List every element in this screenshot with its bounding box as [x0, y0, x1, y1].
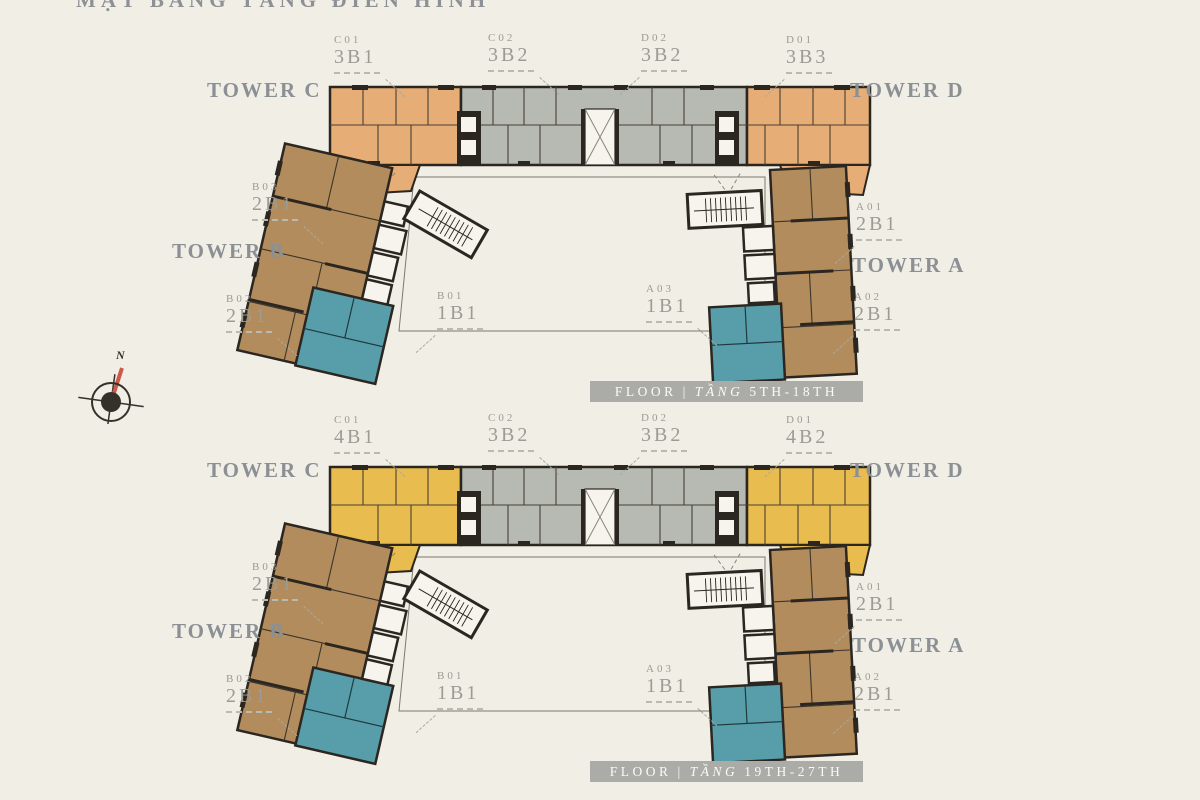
- unit-code: C01: [334, 35, 380, 47]
- unit-type: 3B2: [641, 425, 687, 446]
- tower-d-label: TOWER D: [850, 458, 965, 483]
- dash-marks: [488, 70, 534, 72]
- unit-code: A02: [854, 292, 900, 304]
- unit-label-b03: B03 2B1: [252, 182, 298, 221]
- banner-floor-range: 19TH-27TH: [744, 764, 843, 780]
- unit-label-a02: A02 2B1: [854, 292, 900, 331]
- unit-code: A01: [856, 202, 902, 214]
- unit-type: 2B1: [856, 214, 902, 235]
- dash-marks: [646, 321, 692, 323]
- banner-floor-word: FLOOR: [610, 764, 672, 780]
- unit-code: A03: [646, 284, 692, 296]
- unit-type: 1B1: [646, 296, 692, 317]
- unit-label-a02: A02 2B1: [854, 672, 900, 711]
- dash-marks: [641, 70, 687, 72]
- unit-code: B01: [437, 671, 483, 683]
- banner-divider: |: [678, 764, 684, 780]
- dash-marks: [252, 599, 298, 601]
- unit-type: 3B2: [488, 45, 534, 66]
- dash-marks: [226, 711, 272, 713]
- unit-type: 2B1: [856, 594, 902, 615]
- floor-range-banner: FLOOR | TẦNG 5TH-18TH: [590, 381, 863, 402]
- tower-b-label: TOWER B: [172, 619, 285, 644]
- unit-label-a01: A01 2B1: [856, 202, 902, 241]
- unit-label-a03: A03 1B1: [646, 284, 692, 323]
- floor-range-banner: FLOOR | TẦNG 19TH-27TH: [590, 761, 863, 782]
- dash-marks: [226, 331, 272, 333]
- unit-type: 4B1: [334, 427, 380, 448]
- unit-label-d01: D01 3B3: [786, 35, 832, 74]
- tower-a-label: TOWER A: [852, 253, 965, 278]
- dash-marks: [334, 452, 380, 454]
- tower-a-label: TOWER A: [852, 633, 965, 658]
- unit-code: A03: [646, 664, 692, 676]
- unit-type: 2B1: [226, 306, 272, 327]
- unit-type: 1B1: [437, 303, 483, 324]
- banner-tang-word: TẦNG: [690, 764, 739, 780]
- unit-type: 2B1: [252, 194, 298, 215]
- unit-code: B03: [252, 182, 298, 194]
- floorplan-drawing: [268, 465, 878, 765]
- floorplan-5th-18th: C01 3B1 C02 3B2 D02 3B2 D01 3B3 B03 2B1 …: [0, 33, 1200, 419]
- unit-type: 3B3: [786, 47, 832, 68]
- unit-type: 4B2: [786, 427, 832, 448]
- tower-c-label: TOWER C: [207, 458, 322, 483]
- unit-type: 1B1: [646, 676, 692, 697]
- unit-code: C01: [334, 415, 380, 427]
- unit-label-b02: B02 2B1: [226, 674, 272, 713]
- unit-code: B03: [252, 562, 298, 574]
- dash-marks: [641, 450, 687, 452]
- unit-code: B01: [437, 291, 483, 303]
- unit-label-c02: C02 3B2: [488, 413, 534, 452]
- unit-label-c02: C02 3B2: [488, 33, 534, 72]
- unit-code: A02: [854, 672, 900, 684]
- unit-code: C02: [488, 413, 534, 425]
- dash-marks: [488, 450, 534, 452]
- unit-code: D02: [641, 33, 687, 45]
- unit-label-b01: B01 1B1: [437, 291, 483, 330]
- unit-code: D01: [786, 415, 832, 427]
- unit-label-d02: D02 3B2: [641, 413, 687, 452]
- dash-marks: [437, 328, 483, 330]
- dash-marks: [786, 72, 832, 74]
- unit-label-d01: D01 4B2: [786, 415, 832, 454]
- page-title: MẶT BẰNG TẦNG ĐIỂN HÌNH: [76, 0, 490, 13]
- dash-marks: [856, 619, 902, 621]
- unit-code: B02: [226, 294, 272, 306]
- unit-label-b03: B03 2B1: [252, 562, 298, 601]
- unit-type: 3B1: [334, 47, 380, 68]
- unit-code: D01: [786, 35, 832, 47]
- banner-floor-range: 5TH-18TH: [749, 384, 838, 400]
- banner-floor-word: FLOOR: [615, 384, 677, 400]
- unit-type: 2B1: [854, 684, 900, 705]
- dash-marks: [334, 72, 380, 74]
- unit-label-b01: B01 1B1: [437, 671, 483, 710]
- dash-marks: [437, 708, 483, 710]
- tower-b-label: TOWER B: [172, 239, 285, 264]
- floorplan-page: { "title": "MẶT BẰNG TẦNG ĐIỂN HÌNH", "c…: [0, 0, 1200, 800]
- dash-marks: [252, 219, 298, 221]
- unit-type: 3B2: [488, 425, 534, 446]
- unit-label-c01: C01 3B1: [334, 35, 380, 74]
- tower-c-label: TOWER C: [207, 78, 322, 103]
- dash-marks: [856, 239, 902, 241]
- dash-marks: [854, 709, 900, 711]
- unit-code: B02: [226, 674, 272, 686]
- unit-label-c01: C01 4B1: [334, 415, 380, 454]
- unit-type: 2B1: [854, 304, 900, 325]
- unit-code: A01: [856, 582, 902, 594]
- dash-marks: [646, 701, 692, 703]
- unit-type: 2B1: [226, 686, 272, 707]
- unit-type: 1B1: [437, 683, 483, 704]
- unit-label-b02: B02 2B1: [226, 294, 272, 333]
- tower-d-label: TOWER D: [850, 78, 965, 103]
- dash-marks: [786, 452, 832, 454]
- unit-type: 3B2: [641, 45, 687, 66]
- floorplan-drawing: [268, 85, 878, 385]
- dash-marks: [854, 329, 900, 331]
- unit-code: C02: [488, 33, 534, 45]
- unit-type: 2B1: [252, 574, 298, 595]
- floorplan-19th-27th: C01 4B1 C02 3B2 D02 3B2 D01 4B2 B03 2B1 …: [0, 413, 1200, 799]
- unit-label-a01: A01 2B1: [856, 582, 902, 621]
- unit-label-d02: D02 3B2: [641, 33, 687, 72]
- banner-divider: |: [683, 384, 689, 400]
- unit-code: D02: [641, 413, 687, 425]
- unit-label-a03: A03 1B1: [646, 664, 692, 703]
- banner-tang-word: TẦNG: [695, 384, 744, 400]
